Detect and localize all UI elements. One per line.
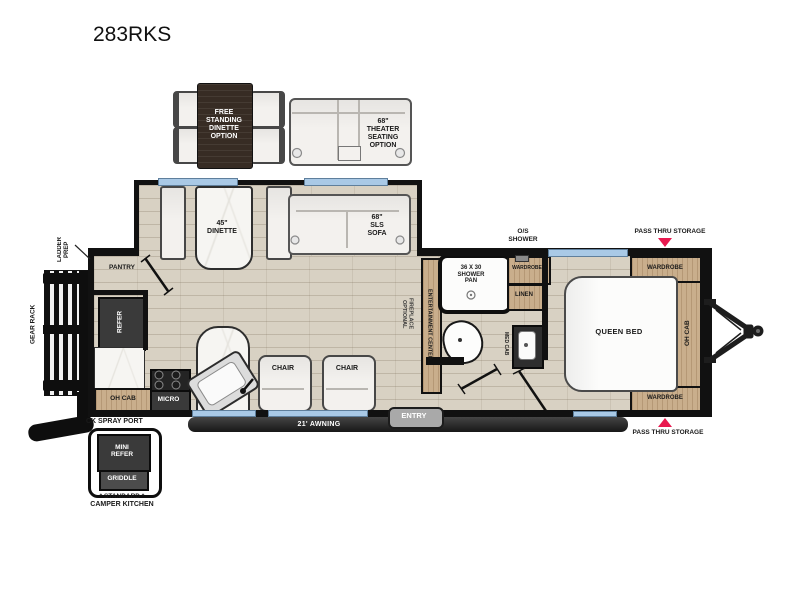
pass-thru-arrow-up-icon xyxy=(658,418,672,427)
bottom-window xyxy=(268,410,368,417)
linen-label: LINEN xyxy=(507,284,541,307)
chair-seat-line xyxy=(326,388,368,390)
theater-option-tray xyxy=(338,146,361,161)
slideout-wall-left xyxy=(134,180,139,256)
gear-rack xyxy=(44,270,92,396)
dinette-option-label: FREE STANDING DINETTE OPTION xyxy=(197,95,251,155)
dinette-label: 45" DINETTE xyxy=(195,210,249,246)
os-shower-label: O/S SHOWER xyxy=(496,226,550,245)
dinette-option-chair xyxy=(250,91,285,128)
entry-label: ENTRY xyxy=(388,407,440,425)
queen-bed-label: QUEEN BED xyxy=(564,276,674,388)
chair-label: CHAIR xyxy=(322,362,372,376)
slideout-window xyxy=(304,178,388,186)
camper-kitchen-caption-2: CAMPER KITCHEN xyxy=(82,501,162,510)
hitch xyxy=(704,299,764,363)
theater-option-label: 68" THEATER SEATING OPTION xyxy=(360,114,406,154)
bedroom-oh-cab-label: OH CAB xyxy=(674,281,701,386)
gear-rack-label: GEAR RACK xyxy=(26,296,40,352)
rear-oh-cab-label: OH CAB xyxy=(94,388,152,410)
rear-bumper-bar xyxy=(27,414,95,442)
bedroom-window xyxy=(548,249,628,257)
fireplace-label: OPTIONAL FIREPLACE xyxy=(396,274,418,354)
sofa-seat-divider xyxy=(346,211,348,248)
floorplan-page: 283RKS FREE STANDING DINETTE OPTION 68" … xyxy=(0,0,800,600)
chair-label: CHAIR xyxy=(258,362,308,376)
rear-counter xyxy=(94,347,145,391)
mini-refer-label: MINI REFER xyxy=(97,434,147,468)
slideout-window xyxy=(158,178,238,186)
awning-label: 21' AWNING xyxy=(264,420,374,431)
shower-pan-label: 36 X 30 SHOWER PAN xyxy=(440,258,502,292)
bath-wardrobe-label: WARDROBE xyxy=(507,256,547,281)
micro-label: MICRO xyxy=(150,390,187,410)
wall-top-left xyxy=(88,248,139,256)
med-cab-label: MED CAB xyxy=(499,324,511,364)
pantry-label: PANTRY xyxy=(98,262,146,274)
dinette-option-chair xyxy=(250,127,285,164)
refer-label: REFER xyxy=(98,297,142,347)
bottom-window xyxy=(192,410,256,417)
pass-thru-storage-bottom-label: PASS THRU STORAGE xyxy=(626,428,710,438)
ck-spray-port-label: CK SPRAY PORT xyxy=(86,417,190,427)
pass-thru-storage-top-label: PASS THRU STORAGE xyxy=(628,227,712,237)
camper-kitchen-caption-1: * STANDARD * xyxy=(86,493,158,501)
entertainment-center-label: ENTERTAINMENT CENTER xyxy=(421,258,438,390)
pass-thru-arrow-down-icon xyxy=(658,238,672,247)
bedroom-wardrobe-bottom-label: WARDROBE xyxy=(630,386,700,410)
pantry-wall xyxy=(94,290,148,295)
page-title: 283RKS xyxy=(93,24,171,45)
dinette-bench xyxy=(160,186,186,260)
bath-sink-bowl xyxy=(518,331,536,360)
chair-seat-line xyxy=(262,388,304,390)
ladder-prep-label: LADDER PREP xyxy=(52,233,76,266)
wall-front xyxy=(700,248,712,417)
slideout-wall-right xyxy=(417,180,422,256)
sofa-label: 68" SLS SOFA xyxy=(352,206,402,246)
refer-wall xyxy=(143,290,148,350)
griddle-label: GRIDDLE xyxy=(99,470,145,487)
bottom-window xyxy=(573,411,617,417)
